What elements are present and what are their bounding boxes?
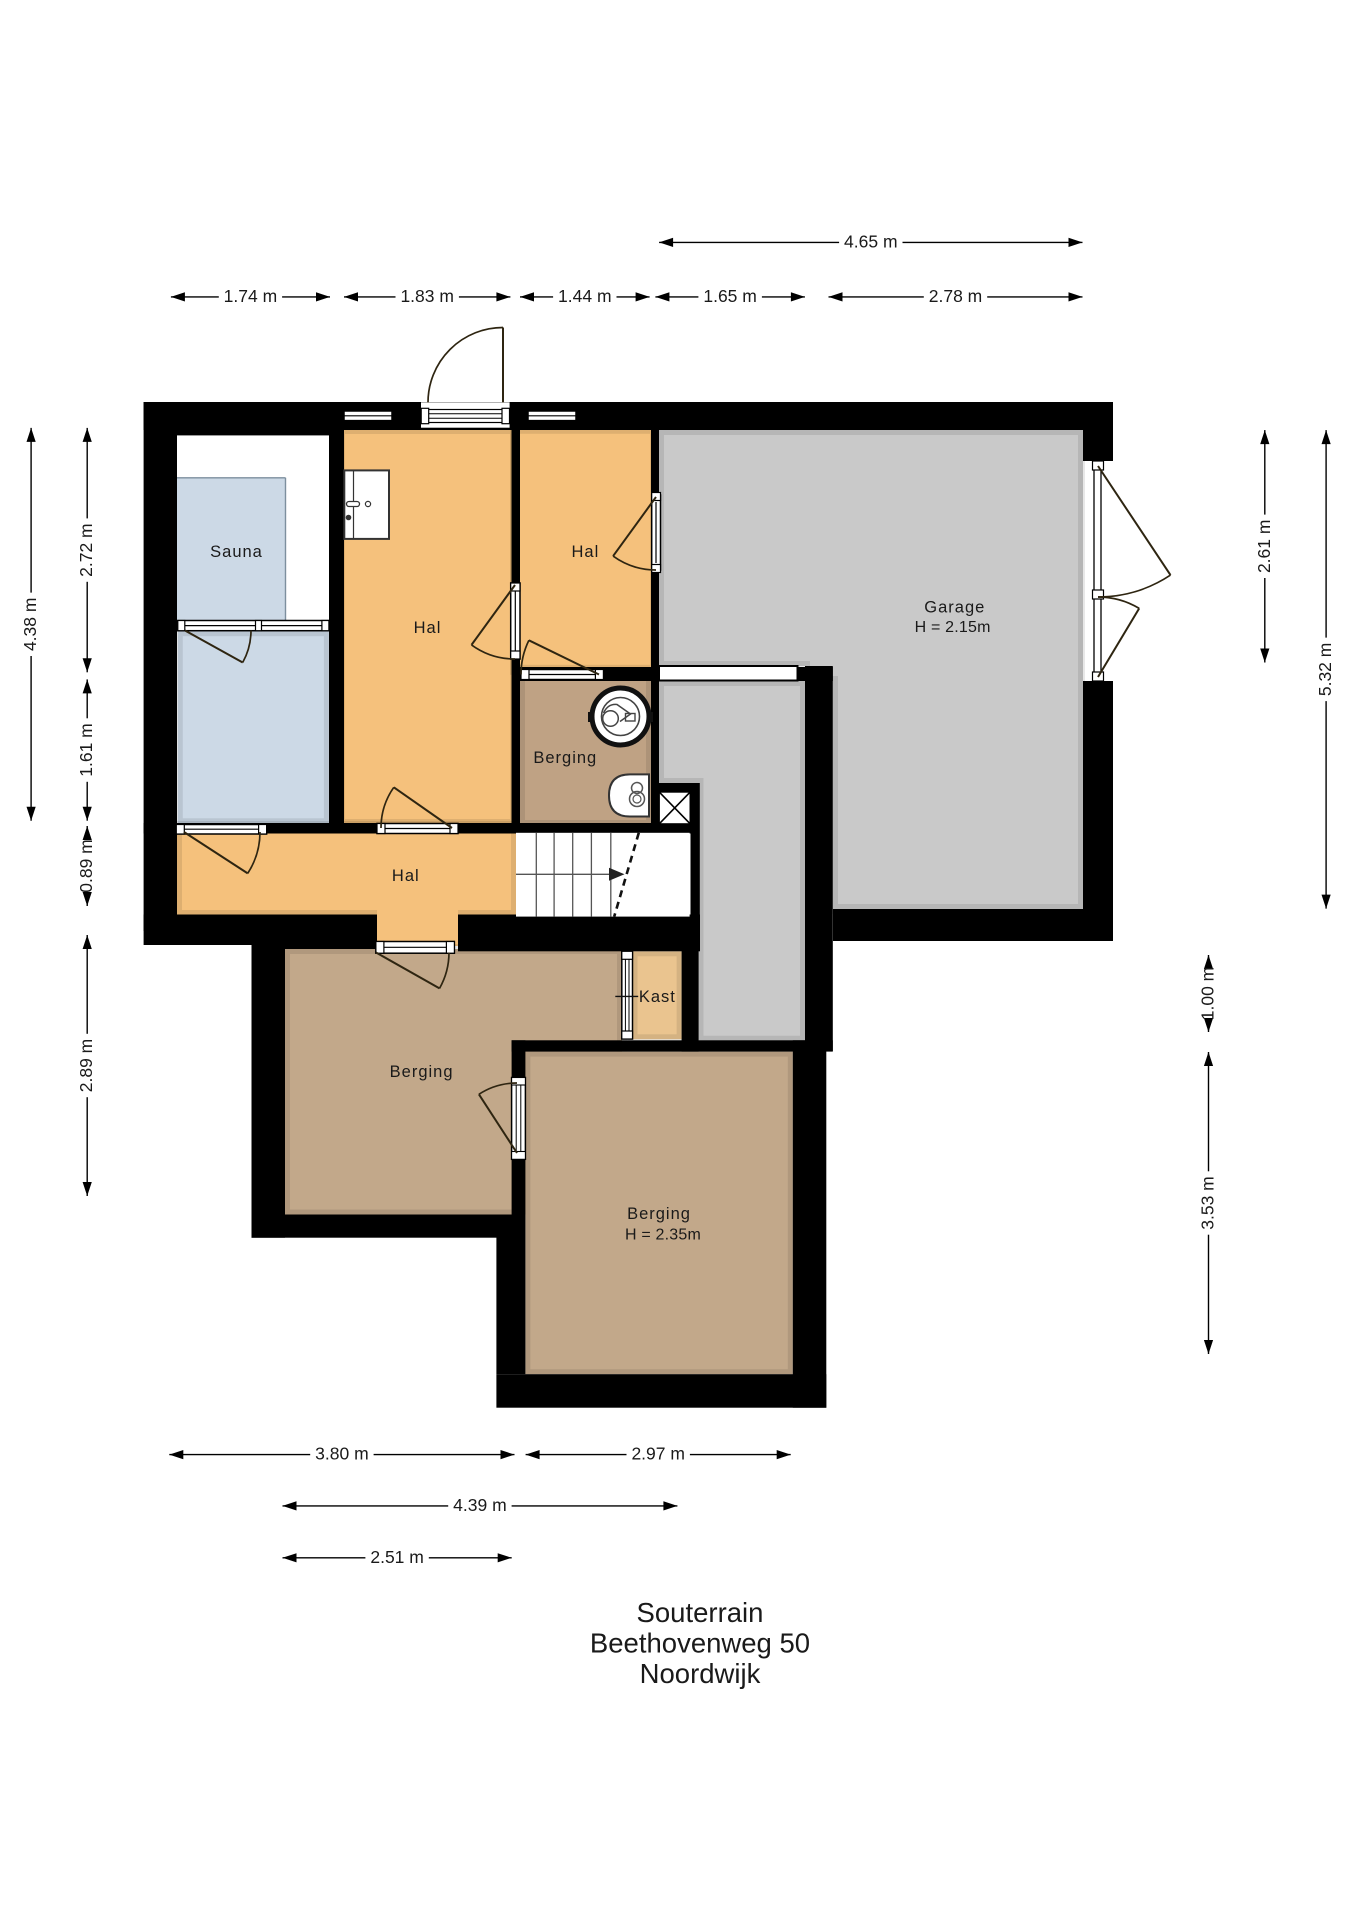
svg-text:H = 2.15m: H = 2.15m — [915, 619, 991, 636]
svg-text:Berging: Berging — [533, 749, 597, 767]
svg-text:Berging: Berging — [627, 1205, 691, 1223]
svg-text:Hal: Hal — [392, 867, 420, 885]
svg-text:2.72 m: 2.72 m — [76, 523, 96, 577]
svg-text:5.32 m: 5.32 m — [1315, 643, 1335, 697]
svg-text:2.51 m: 2.51 m — [370, 1547, 424, 1567]
svg-text:1.61 m: 1.61 m — [76, 723, 96, 777]
svg-text:4.38 m: 4.38 m — [20, 598, 40, 652]
svg-text:3.80 m: 3.80 m — [315, 1444, 369, 1464]
svg-text:1.65 m: 1.65 m — [703, 286, 757, 306]
svg-text:0.89 m: 0.89 m — [76, 839, 96, 893]
svg-text:Beethovenweg 50: Beethovenweg 50 — [590, 1628, 810, 1659]
svg-text:4.39 m: 4.39 m — [453, 1495, 507, 1515]
svg-text:Noordwijk: Noordwijk — [640, 1658, 761, 1689]
svg-text:1.00 m: 1.00 m — [1198, 967, 1218, 1021]
svg-text:4.65 m: 4.65 m — [844, 231, 898, 251]
svg-text:Berging: Berging — [390, 1063, 454, 1081]
svg-text:2.61 m: 2.61 m — [1254, 520, 1274, 574]
svg-text:2.89 m: 2.89 m — [76, 1039, 96, 1093]
svg-text:2.78 m: 2.78 m — [929, 286, 983, 306]
svg-text:Kast: Kast — [639, 988, 676, 1006]
svg-text:H = 2.35m: H = 2.35m — [625, 1227, 701, 1244]
svg-text:1.44 m: 1.44 m — [558, 286, 612, 306]
svg-text:Sauna: Sauna — [210, 543, 263, 561]
svg-text:1.83 m: 1.83 m — [400, 286, 454, 306]
svg-text:3.53 m: 3.53 m — [1198, 1176, 1218, 1230]
svg-text:Hal: Hal — [414, 619, 442, 637]
svg-text:1.74 m: 1.74 m — [224, 286, 278, 306]
svg-text:Souterrain: Souterrain — [637, 1597, 764, 1628]
svg-text:Hal: Hal — [572, 543, 600, 561]
svg-text:2.97 m: 2.97 m — [631, 1444, 685, 1464]
svg-text:Garage: Garage — [924, 599, 985, 617]
